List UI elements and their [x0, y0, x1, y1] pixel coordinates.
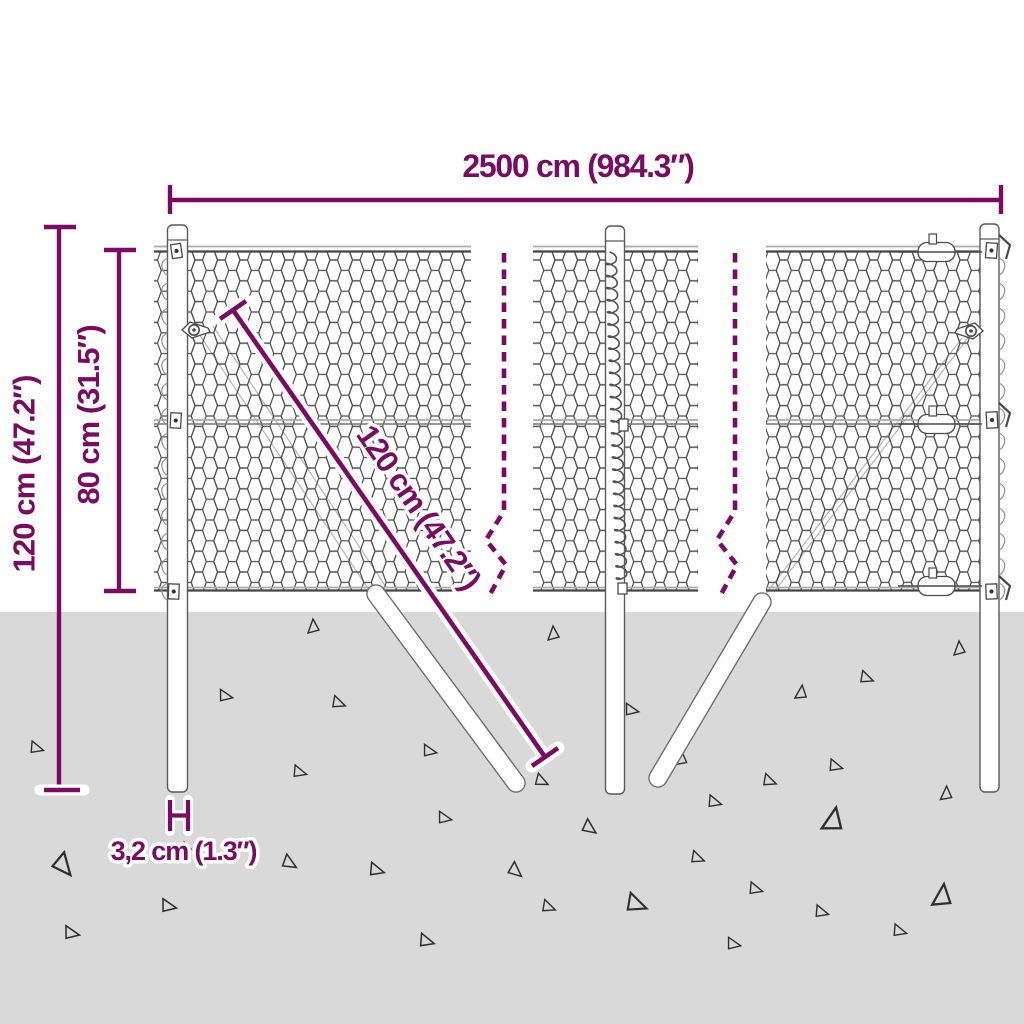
svg-text:80 cm (31.5″): 80 cm (31.5″) — [71, 325, 106, 504]
svg-text:2500 cm (984.3″): 2500 cm (984.3″) — [462, 148, 694, 184]
svg-text:3,2 cm (1.3″): 3,2 cm (1.3″) — [111, 836, 257, 866]
svg-text:120 cm (47.2″): 120 cm (47.2″) — [7, 376, 42, 573]
